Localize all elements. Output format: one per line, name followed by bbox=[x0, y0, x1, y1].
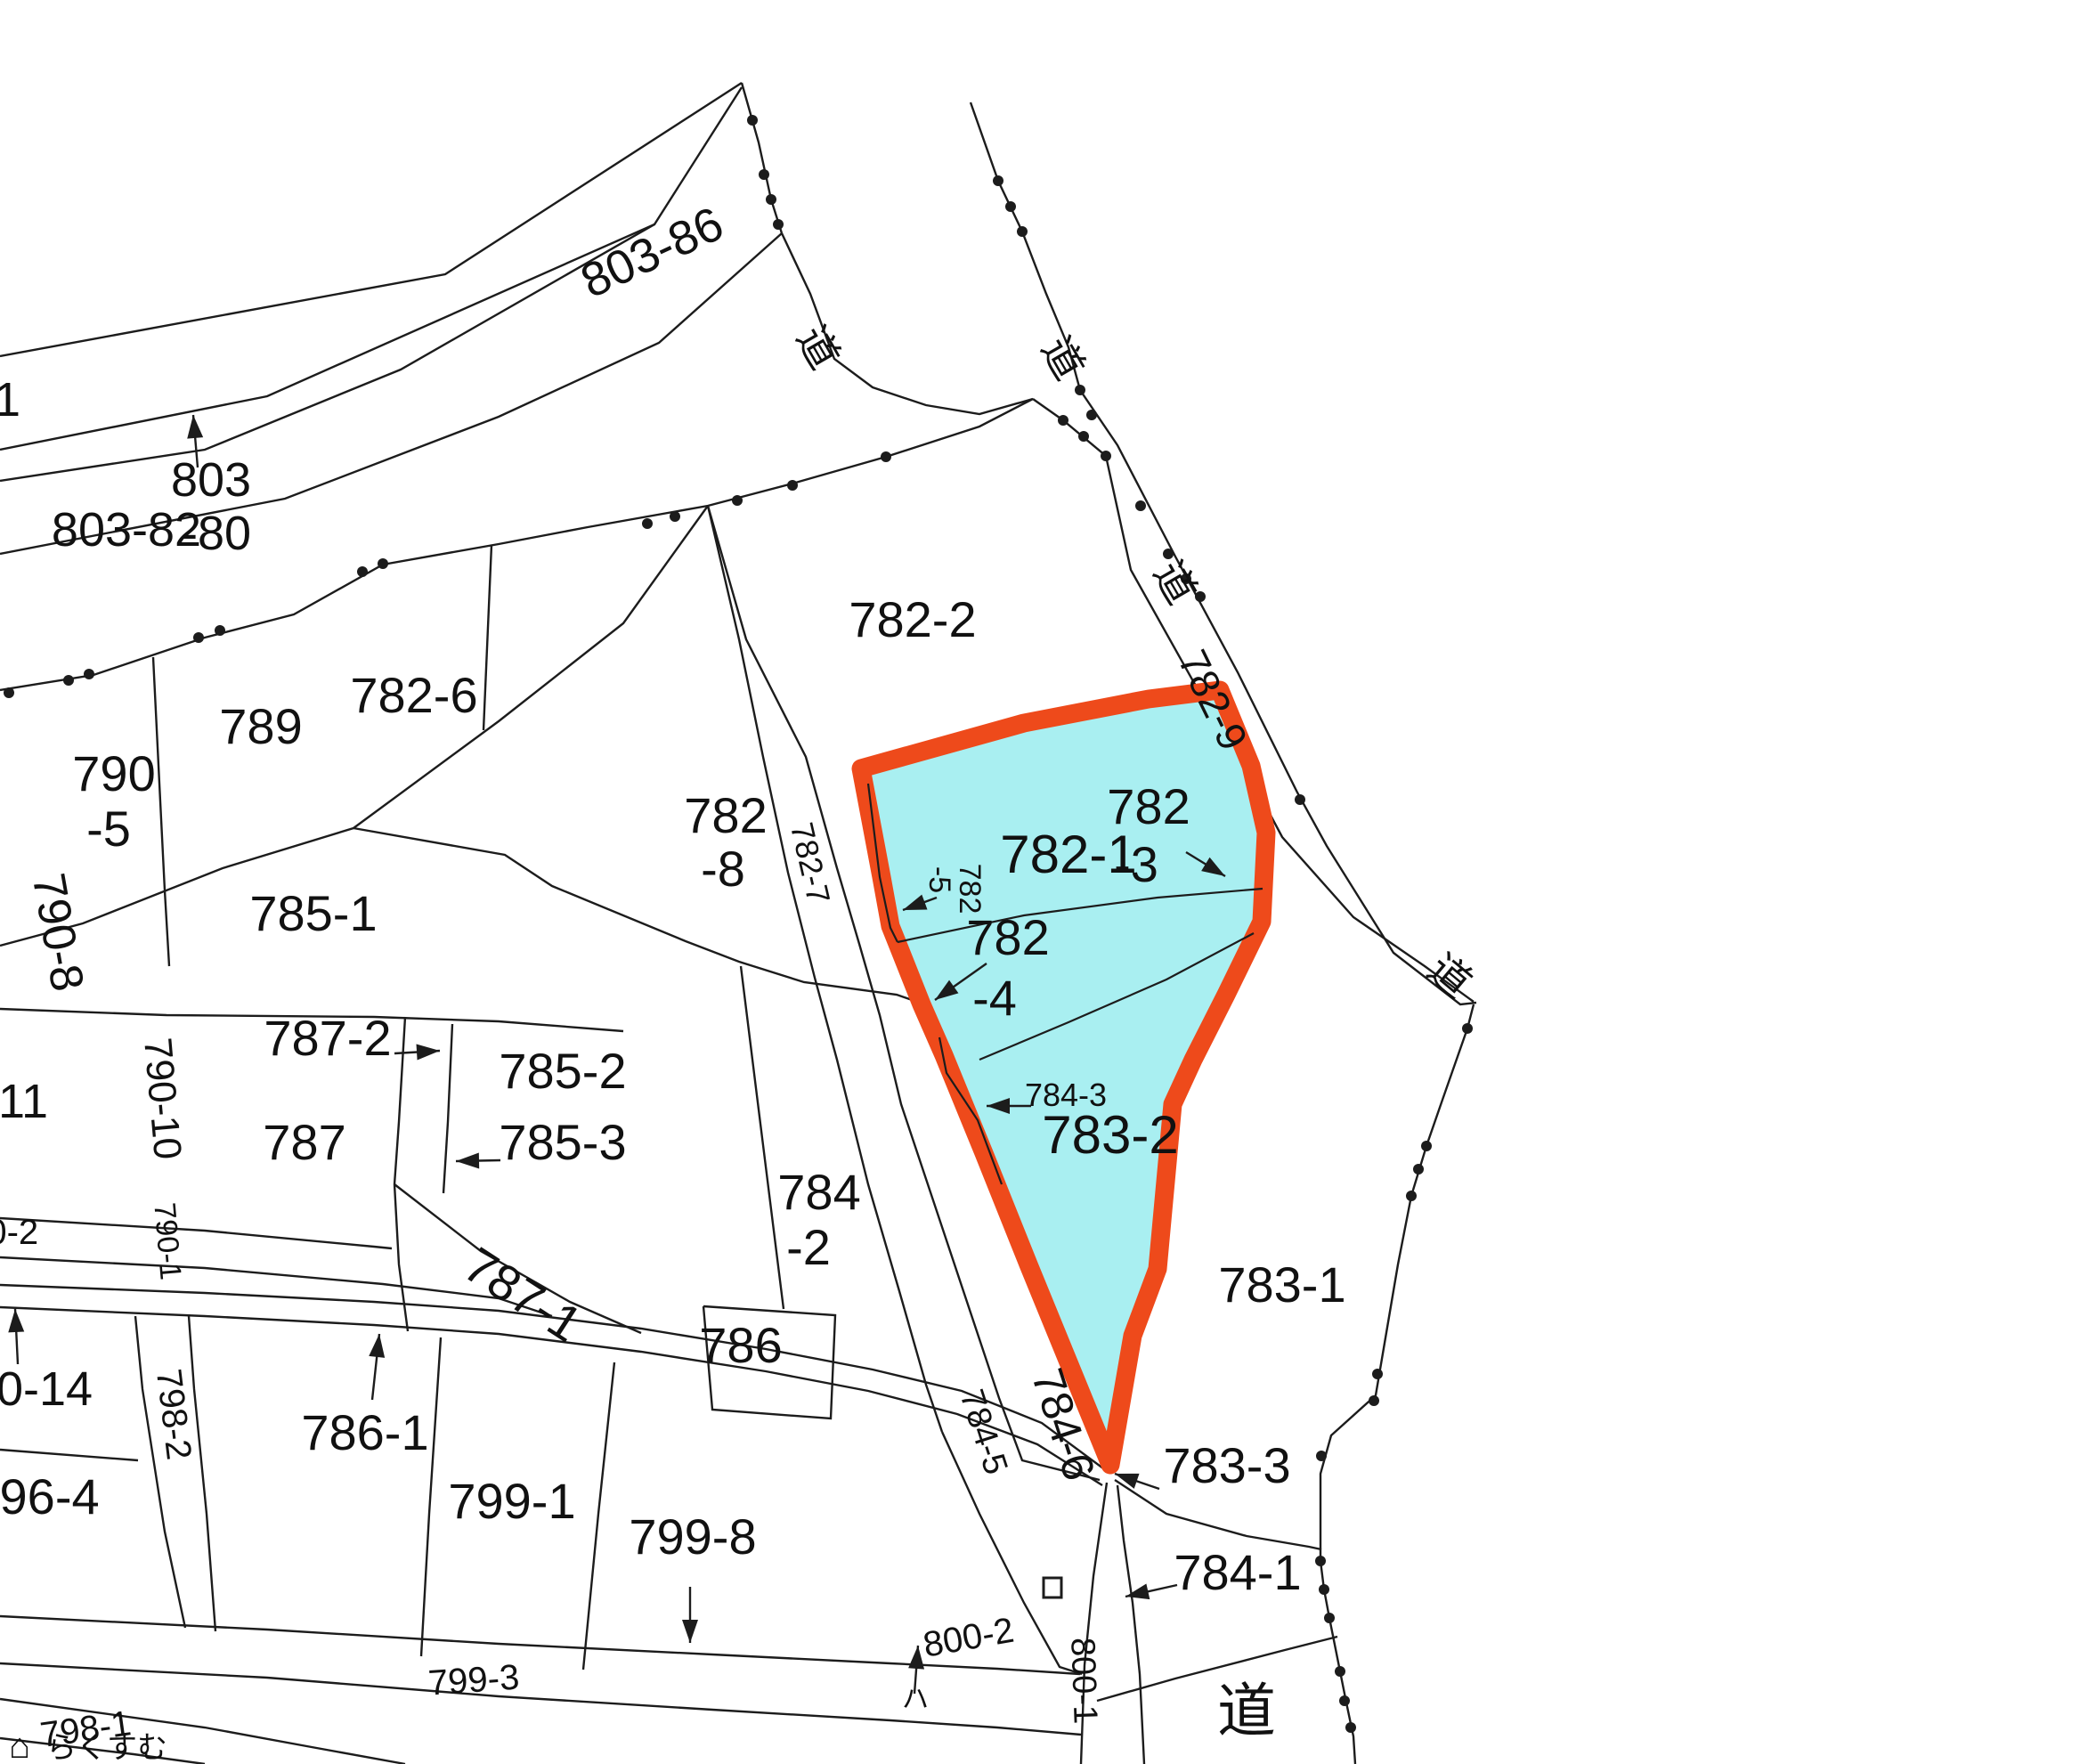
survey-point-dot bbox=[1421, 1141, 1432, 1151]
survey-point-dot bbox=[1163, 549, 1174, 559]
survey-point-dot bbox=[1369, 1395, 1379, 1406]
survey-point-dot bbox=[215, 625, 225, 636]
survey-point-dot bbox=[759, 169, 769, 180]
survey-point-dot bbox=[642, 518, 653, 529]
parcel-label-790-5a: 790 bbox=[72, 745, 155, 801]
small-structure-marker bbox=[1044, 1578, 1061, 1597]
survey-point-dot bbox=[993, 175, 1003, 186]
survey-point-dot bbox=[1324, 1613, 1335, 1623]
survey-point-dot bbox=[766, 194, 776, 205]
parcel-label-799-8: 799-8 bbox=[629, 1508, 756, 1565]
parcel-label-796-4: 796-4 bbox=[0, 1468, 100, 1524]
survey-point-dot bbox=[1135, 500, 1146, 511]
parcel-label-790-14: 790-14 bbox=[0, 1362, 93, 1416]
survey-point-dot bbox=[193, 632, 204, 643]
survey-point-dot bbox=[1058, 415, 1068, 426]
watermark-logo-text: らくすむ bbox=[46, 1731, 167, 1764]
survey-point-dot bbox=[4, 687, 14, 698]
parcel-label-803-80b: -80 bbox=[182, 507, 251, 560]
parcel-label-782-2: 782-2 bbox=[849, 591, 976, 647]
survey-point-dot bbox=[732, 495, 743, 506]
survey-point-dot bbox=[1345, 1722, 1356, 1733]
parcel-label-787-2: 787-2 bbox=[264, 1010, 391, 1066]
survey-point-dot bbox=[1406, 1191, 1417, 1201]
parcel-label-785-1: 785-1 bbox=[249, 885, 377, 941]
parcel-label-800-1: 800-1 bbox=[1063, 1637, 1103, 1725]
parcel-label-799-1: 799-1 bbox=[448, 1473, 575, 1529]
survey-point-dot bbox=[747, 115, 758, 126]
survey-point-dot bbox=[787, 480, 798, 491]
survey-point-dot bbox=[773, 219, 784, 230]
watermark-house-icon: ⌂ bbox=[9, 1727, 30, 1764]
parcel-label-782-5a: 782 bbox=[953, 864, 987, 915]
parcel-label-799-3: 799-3 bbox=[427, 1658, 521, 1703]
cadastral-map: 803-861803-82803-80782-2782-6789790-5790… bbox=[0, 0, 2080, 1764]
survey-point-dot bbox=[1462, 1023, 1473, 1034]
survey-point-dot bbox=[1075, 385, 1085, 395]
parcel-label-789: 789 bbox=[219, 698, 302, 754]
parcel-label-782-8a: 782 bbox=[684, 787, 767, 843]
parcel-label-803-82: 803-82 bbox=[52, 503, 201, 557]
survey-point-dot bbox=[1316, 1451, 1327, 1461]
parcel-label-790-11: 790-11 bbox=[0, 1075, 48, 1128]
survey-point-dot bbox=[1017, 226, 1028, 237]
parcel-label-782-6: 782-6 bbox=[350, 667, 477, 723]
survey-point-dot bbox=[1413, 1164, 1424, 1175]
parcel-label-783-2: 783-2 bbox=[1042, 1105, 1178, 1165]
survey-point-dot bbox=[84, 669, 94, 679]
survey-point-dot bbox=[1086, 410, 1097, 420]
parcel-label-786-1: 786-1 bbox=[301, 1404, 428, 1460]
survey-point-dot bbox=[1005, 201, 1016, 212]
parcel-label-803-80a: 803 bbox=[171, 453, 251, 507]
survey-point-dot bbox=[378, 558, 388, 569]
road-label-5: 道 bbox=[1217, 1678, 1276, 1744]
parcel-label-edge-1: 1 bbox=[0, 373, 20, 427]
survey-point-dot bbox=[1319, 1584, 1329, 1595]
parcel-label-782-5b: -5 bbox=[922, 866, 956, 893]
parcel-label-782-4a: 782 bbox=[966, 909, 1049, 965]
parcel-label-790-2: 790-2 bbox=[0, 1213, 38, 1252]
survey-point-dot bbox=[357, 566, 368, 577]
parcel-label-782-3b: -3 bbox=[1114, 836, 1158, 892]
parcel-label-784-2b: -2 bbox=[786, 1219, 831, 1275]
survey-point-dot bbox=[1101, 451, 1111, 461]
survey-point-dot bbox=[63, 675, 74, 686]
cadastral-map-viewport: 803-861803-82803-80782-2782-6789790-5790… bbox=[0, 0, 2080, 1764]
parcel-label-782-8b: -8 bbox=[701, 841, 745, 897]
survey-point-dot bbox=[1339, 1695, 1350, 1706]
survey-point-dot bbox=[670, 511, 680, 522]
survey-point-dot bbox=[1295, 794, 1305, 805]
survey-point-dot bbox=[1372, 1369, 1383, 1379]
parcel-label-785-3: 785-3 bbox=[499, 1114, 626, 1170]
survey-point-dot bbox=[1335, 1666, 1345, 1677]
survey-point-dot bbox=[881, 451, 891, 462]
parcel-label-784-1: 784-1 bbox=[1174, 1544, 1301, 1600]
parcel-label-782-3a: 782 bbox=[1107, 778, 1190, 834]
parcel-label-786: 786 bbox=[699, 1317, 782, 1373]
survey-point-dot bbox=[1078, 431, 1089, 442]
parcel-label-783-1: 783-1 bbox=[1218, 1256, 1345, 1313]
survey-point-dot bbox=[1315, 1556, 1326, 1566]
parcel-label-787: 787 bbox=[263, 1114, 345, 1170]
parcel-label-784-2a: 784 bbox=[777, 1164, 860, 1220]
parcel-label-790-5b: -5 bbox=[86, 801, 131, 857]
parcel-label-783-3: 783-3 bbox=[1163, 1437, 1290, 1493]
parcel-label-785-2: 785-2 bbox=[499, 1043, 626, 1099]
parcel-label-782-4b: -4 bbox=[972, 970, 1017, 1026]
parcel-label-790-1: 790-1 bbox=[147, 1201, 187, 1281]
parcel-label-ha: ハ bbox=[902, 1685, 929, 1714]
